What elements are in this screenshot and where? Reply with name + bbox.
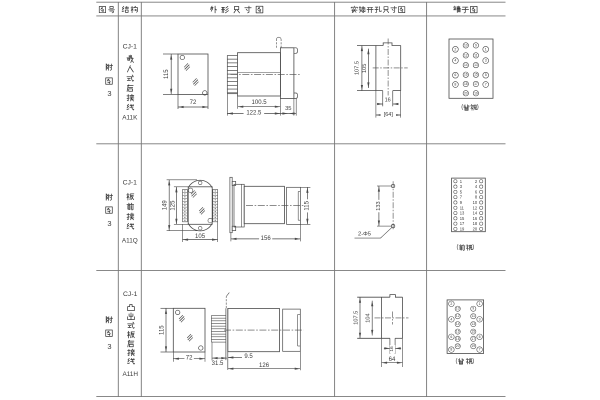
svg-text:11: 11 [460, 205, 465, 210]
svg-text:6: 6 [450, 335, 452, 339]
svg-text:35: 35 [285, 106, 291, 112]
svg-text:14: 14 [473, 211, 478, 216]
svg-text:149: 149 [163, 200, 169, 211]
svg-text:18: 18 [456, 337, 460, 341]
svg-text:2: 2 [450, 302, 452, 306]
svg-text:31.5: 31.5 [212, 361, 224, 367]
svg-text:19: 19 [474, 91, 478, 95]
svg-text:CJ-1: CJ-1 [123, 43, 138, 50]
svg-text:16: 16 [464, 73, 468, 77]
svg-text:3: 3 [107, 219, 111, 228]
svg-text:15: 15 [460, 216, 465, 221]
svg-text:A11Q: A11Q [122, 237, 138, 244]
svg-text:13: 13 [460, 211, 465, 216]
svg-text:10: 10 [456, 307, 460, 311]
svg-text:16: 16 [389, 346, 395, 352]
svg-text:115: 115 [304, 200, 310, 210]
svg-text:13: 13 [474, 63, 478, 67]
svg-text:): ) [472, 358, 474, 364]
svg-text:100.5: 100.5 [252, 100, 268, 106]
svg-text:11: 11 [474, 53, 478, 57]
svg-text:2-Φ5: 2-Φ5 [358, 231, 371, 237]
svg-text:): ) [477, 105, 479, 111]
svg-text:72: 72 [186, 356, 193, 362]
svg-text:115: 115 [164, 69, 170, 79]
svg-text:20: 20 [456, 344, 460, 348]
svg-text:A11K: A11K [122, 114, 138, 121]
svg-text:12: 12 [464, 53, 468, 57]
svg-text:15: 15 [474, 73, 478, 77]
svg-text:(: ( [461, 105, 463, 111]
svg-text:19: 19 [460, 226, 465, 231]
svg-text:4: 4 [450, 317, 452, 321]
svg-text:64: 64 [389, 357, 396, 363]
svg-text:9: 9 [475, 43, 477, 47]
svg-text:(: ( [456, 358, 458, 364]
svg-text:13: 13 [472, 322, 476, 326]
svg-text:17: 17 [472, 337, 476, 341]
svg-text:9.5: 9.5 [244, 354, 253, 360]
svg-text:3: 3 [479, 317, 481, 321]
svg-text:17: 17 [474, 82, 478, 86]
svg-text:5: 5 [485, 73, 487, 77]
svg-text:156: 156 [261, 236, 272, 242]
svg-text:104: 104 [366, 313, 372, 322]
svg-text:115: 115 [160, 325, 166, 335]
svg-text:14: 14 [456, 322, 460, 326]
svg-text:2: 2 [454, 47, 456, 51]
svg-text:107.5: 107.5 [355, 61, 361, 75]
svg-text:7: 7 [479, 348, 481, 352]
svg-text:126: 126 [259, 363, 270, 369]
svg-text:16: 16 [385, 97, 391, 103]
svg-text:6: 6 [454, 73, 456, 77]
svg-text:12: 12 [456, 314, 460, 318]
svg-text:14: 14 [464, 63, 468, 67]
svg-text:10: 10 [473, 200, 478, 205]
svg-text:): ) [472, 245, 474, 251]
svg-text:12: 12 [473, 205, 478, 210]
svg-text:18: 18 [473, 221, 478, 226]
svg-text:7: 7 [485, 83, 487, 87]
svg-text:8: 8 [450, 348, 452, 352]
svg-text:105: 105 [362, 64, 368, 73]
svg-text:9: 9 [472, 307, 474, 311]
svg-text:10: 10 [464, 43, 468, 47]
svg-text:3: 3 [485, 59, 487, 63]
svg-text:A11H: A11H [122, 371, 138, 378]
svg-text:20: 20 [473, 226, 478, 231]
svg-text:[64]: [64] [384, 112, 394, 118]
svg-text:125: 125 [170, 200, 176, 211]
svg-text:8: 8 [454, 83, 456, 87]
svg-text:CJ-1: CJ-1 [123, 291, 138, 298]
svg-text:107.5: 107.5 [353, 311, 359, 325]
svg-text:18: 18 [464, 82, 468, 86]
svg-text:20: 20 [464, 91, 468, 95]
svg-text:4: 4 [454, 59, 456, 63]
svg-text:5: 5 [479, 335, 481, 339]
svg-text:19: 19 [472, 344, 476, 348]
svg-text:17: 17 [460, 221, 465, 226]
svg-text:CJ-1: CJ-1 [123, 180, 138, 187]
svg-text:(: ( [457, 245, 459, 251]
svg-text:1: 1 [485, 47, 487, 51]
svg-text:11: 11 [472, 314, 476, 318]
svg-text:3: 3 [107, 89, 111, 98]
svg-text:72: 72 [190, 100, 197, 106]
svg-text:105: 105 [195, 234, 206, 240]
svg-text:3: 3 [107, 342, 111, 351]
svg-text:16: 16 [473, 216, 478, 221]
svg-text:133: 133 [376, 201, 382, 210]
svg-text:122.5: 122.5 [246, 111, 262, 117]
svg-text:15: 15 [472, 330, 476, 334]
svg-text:16: 16 [456, 330, 460, 334]
svg-text:1: 1 [479, 302, 481, 306]
